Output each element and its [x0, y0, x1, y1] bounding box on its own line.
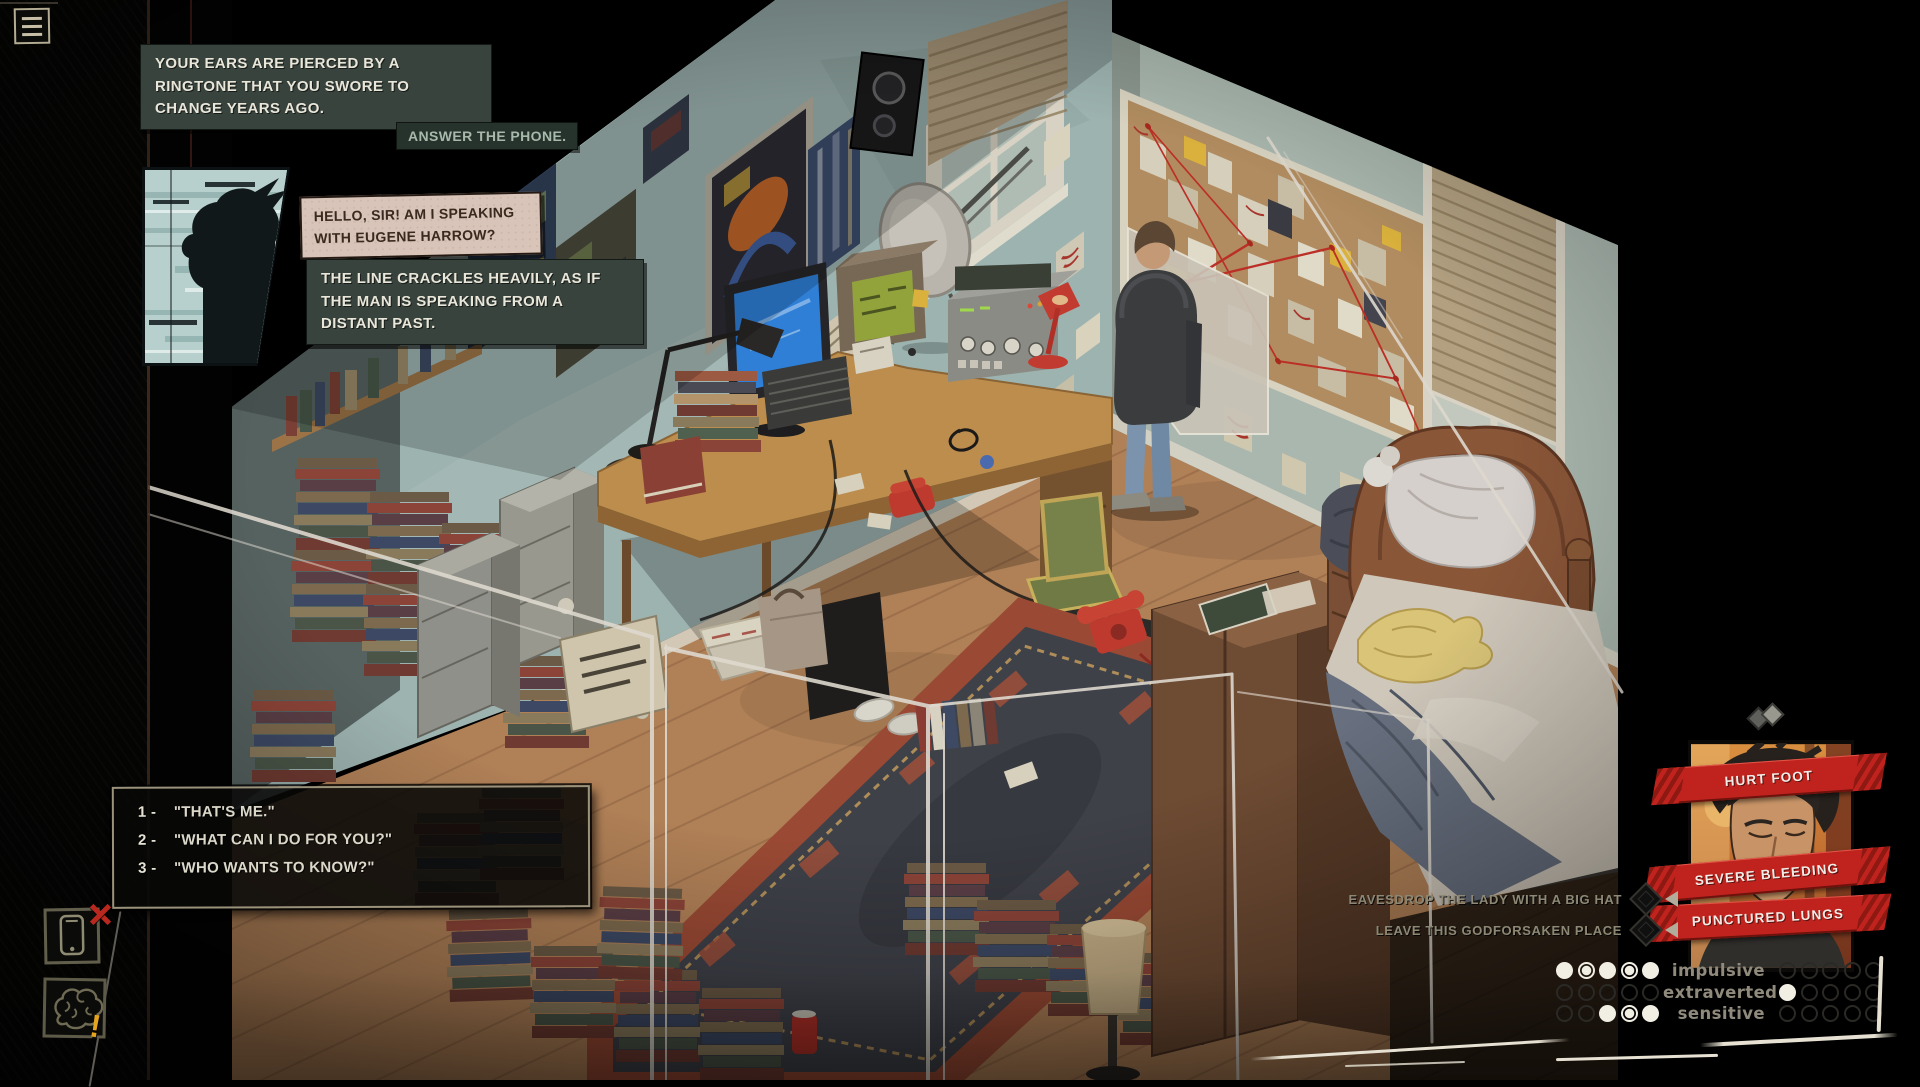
trait-dots-left — [1556, 984, 1660, 1001]
trait-label: impulsive — [1663, 961, 1765, 980]
diamond-marker-icon[interactable] — [1629, 882, 1663, 916]
trait-dot-empty — [1822, 1005, 1839, 1022]
choice-number: 1 - — [138, 804, 174, 821]
choice-number: 2 - — [138, 832, 174, 849]
dialogue-choice[interactable]: 3 -"WHO WANTS TO KNOW?" — [138, 858, 588, 877]
trait-row: sensitive — [1556, 1003, 1896, 1025]
trait-dot-empty — [1844, 984, 1861, 1001]
trait-dot-filled — [1642, 962, 1659, 979]
narration-box: YOUR EARS ARE PIERCED BY A RINGTONE THAT… — [140, 44, 492, 130]
interaction-option[interactable]: EAVESDROP THE LADY WITH A BIG HAT — [1240, 884, 1678, 914]
trait-dot-empty — [1822, 984, 1839, 1001]
trait-dot-empty — [1621, 984, 1638, 1001]
trait-dot-empty — [1556, 984, 1573, 1001]
interaction-option-label: EAVESDROP THE LADY WITH A BIG HAT — [1240, 892, 1622, 907]
trait-dots-left — [1556, 962, 1660, 979]
dialogue-choice[interactable]: 1 -"THAT'S ME." — [138, 802, 588, 821]
trait-dot-empty — [1556, 1005, 1573, 1022]
caller-speech-bubble: HELLO, SIR! AM I SPEAKING WITH EUGENE HA… — [299, 191, 542, 259]
trait-dots-left — [1556, 1005, 1660, 1022]
interaction-option[interactable]: LEAVE THIS GODFORSAKEN PLACE — [1240, 915, 1678, 945]
trait-dot-filled — [1642, 1005, 1659, 1022]
phone-unavailable-x-icon — [86, 900, 114, 928]
trait-dot-empty — [1779, 1005, 1796, 1022]
double-diamond-icon[interactable] — [1748, 704, 1788, 734]
choice-text: "WHAT CAN I DO FOR YOU?" — [174, 831, 392, 849]
trait-dot-empty — [1642, 984, 1659, 1001]
cursor-triangle-icon — [1665, 891, 1678, 907]
trait-dots-right — [1779, 984, 1883, 1001]
choice-number: 3 - — [138, 860, 174, 877]
dialogue-choice[interactable]: 2 -"WHAT CAN I DO FOR YOU?" — [138, 830, 588, 849]
personality-traits-panel: impulsive extraverted sensitive — [1556, 960, 1896, 1025]
trait-dot-empty — [1822, 962, 1839, 979]
trait-dot-empty — [1599, 984, 1616, 1001]
trait-dot-empty — [1801, 962, 1818, 979]
diamond-marker-icon[interactable] — [1629, 913, 1663, 947]
trait-dot-filled — [1556, 962, 1573, 979]
trait-dot-empty — [1844, 1005, 1861, 1022]
dialogue-choices-panel: 1 -"THAT'S ME." 2 -"WHAT CAN I DO FOR YO… — [112, 785, 590, 909]
trait-dot-filled — [1599, 962, 1616, 979]
trait-label: sensitive — [1663, 1004, 1765, 1023]
film-strip-line — [147, 0, 150, 1080]
trait-dot-filled — [1779, 984, 1796, 1001]
interaction-option-label: LEAVE THIS GODFORSAKEN PLACE — [1240, 923, 1622, 938]
trait-row: impulsive — [1556, 960, 1896, 982]
cursor-triangle-icon — [1665, 922, 1678, 938]
trait-dot-empty — [1578, 984, 1595, 1001]
trait-row: extraverted — [1556, 982, 1896, 1004]
narration-box-2: THE LINE CRACKLES HEAVILY, AS IF THE MAN… — [306, 259, 644, 345]
trait-label: extraverted — [1663, 983, 1765, 1002]
trait-dots-right — [1779, 962, 1883, 979]
top-tick-line — [0, 2, 58, 4]
trait-dot-empty — [1578, 1005, 1595, 1022]
trait-dot-empty — [1801, 1005, 1818, 1022]
hamburger-menu-icon — [22, 16, 42, 19]
choice-text: "THAT'S ME." — [174, 803, 275, 820]
trait-dot-empty — [1844, 962, 1861, 979]
choice-text: "WHO WANTS TO KNOW?" — [174, 859, 375, 877]
trait-dot-empty — [1801, 984, 1818, 1001]
trait-dot-ring — [1621, 962, 1638, 979]
trait-dots-right — [1779, 1005, 1883, 1022]
trait-dot-ring — [1621, 1005, 1638, 1022]
previous-choice-box: ANSWER THE PHONE. — [396, 122, 578, 150]
menu-button[interactable] — [14, 8, 51, 45]
trait-dot-empty — [1779, 962, 1796, 979]
trait-dot-ring — [1578, 962, 1595, 979]
trait-dot-filled — [1599, 1005, 1616, 1022]
